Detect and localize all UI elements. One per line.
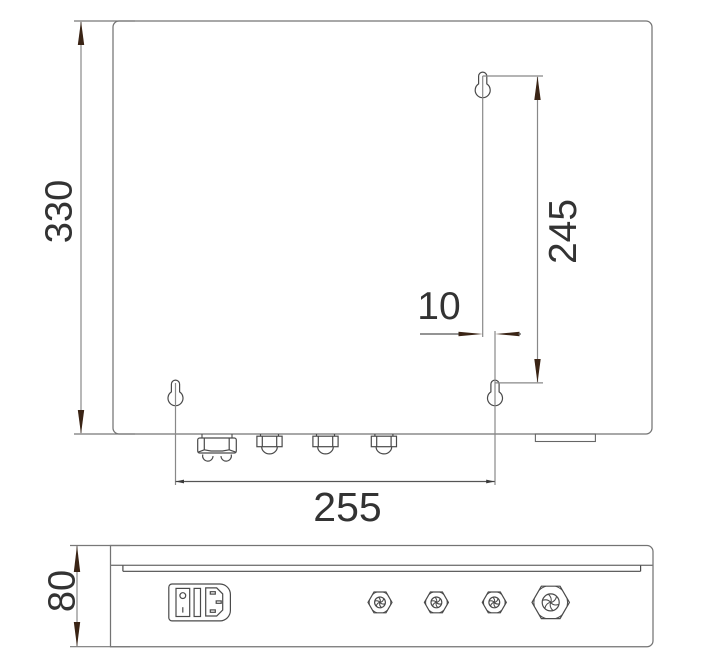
svg-text:330: 330 — [39, 180, 81, 243]
svg-text:80: 80 — [42, 570, 84, 612]
svg-text:245: 245 — [542, 199, 585, 264]
svg-text:255: 255 — [313, 484, 381, 530]
svg-text:10: 10 — [417, 285, 460, 328]
